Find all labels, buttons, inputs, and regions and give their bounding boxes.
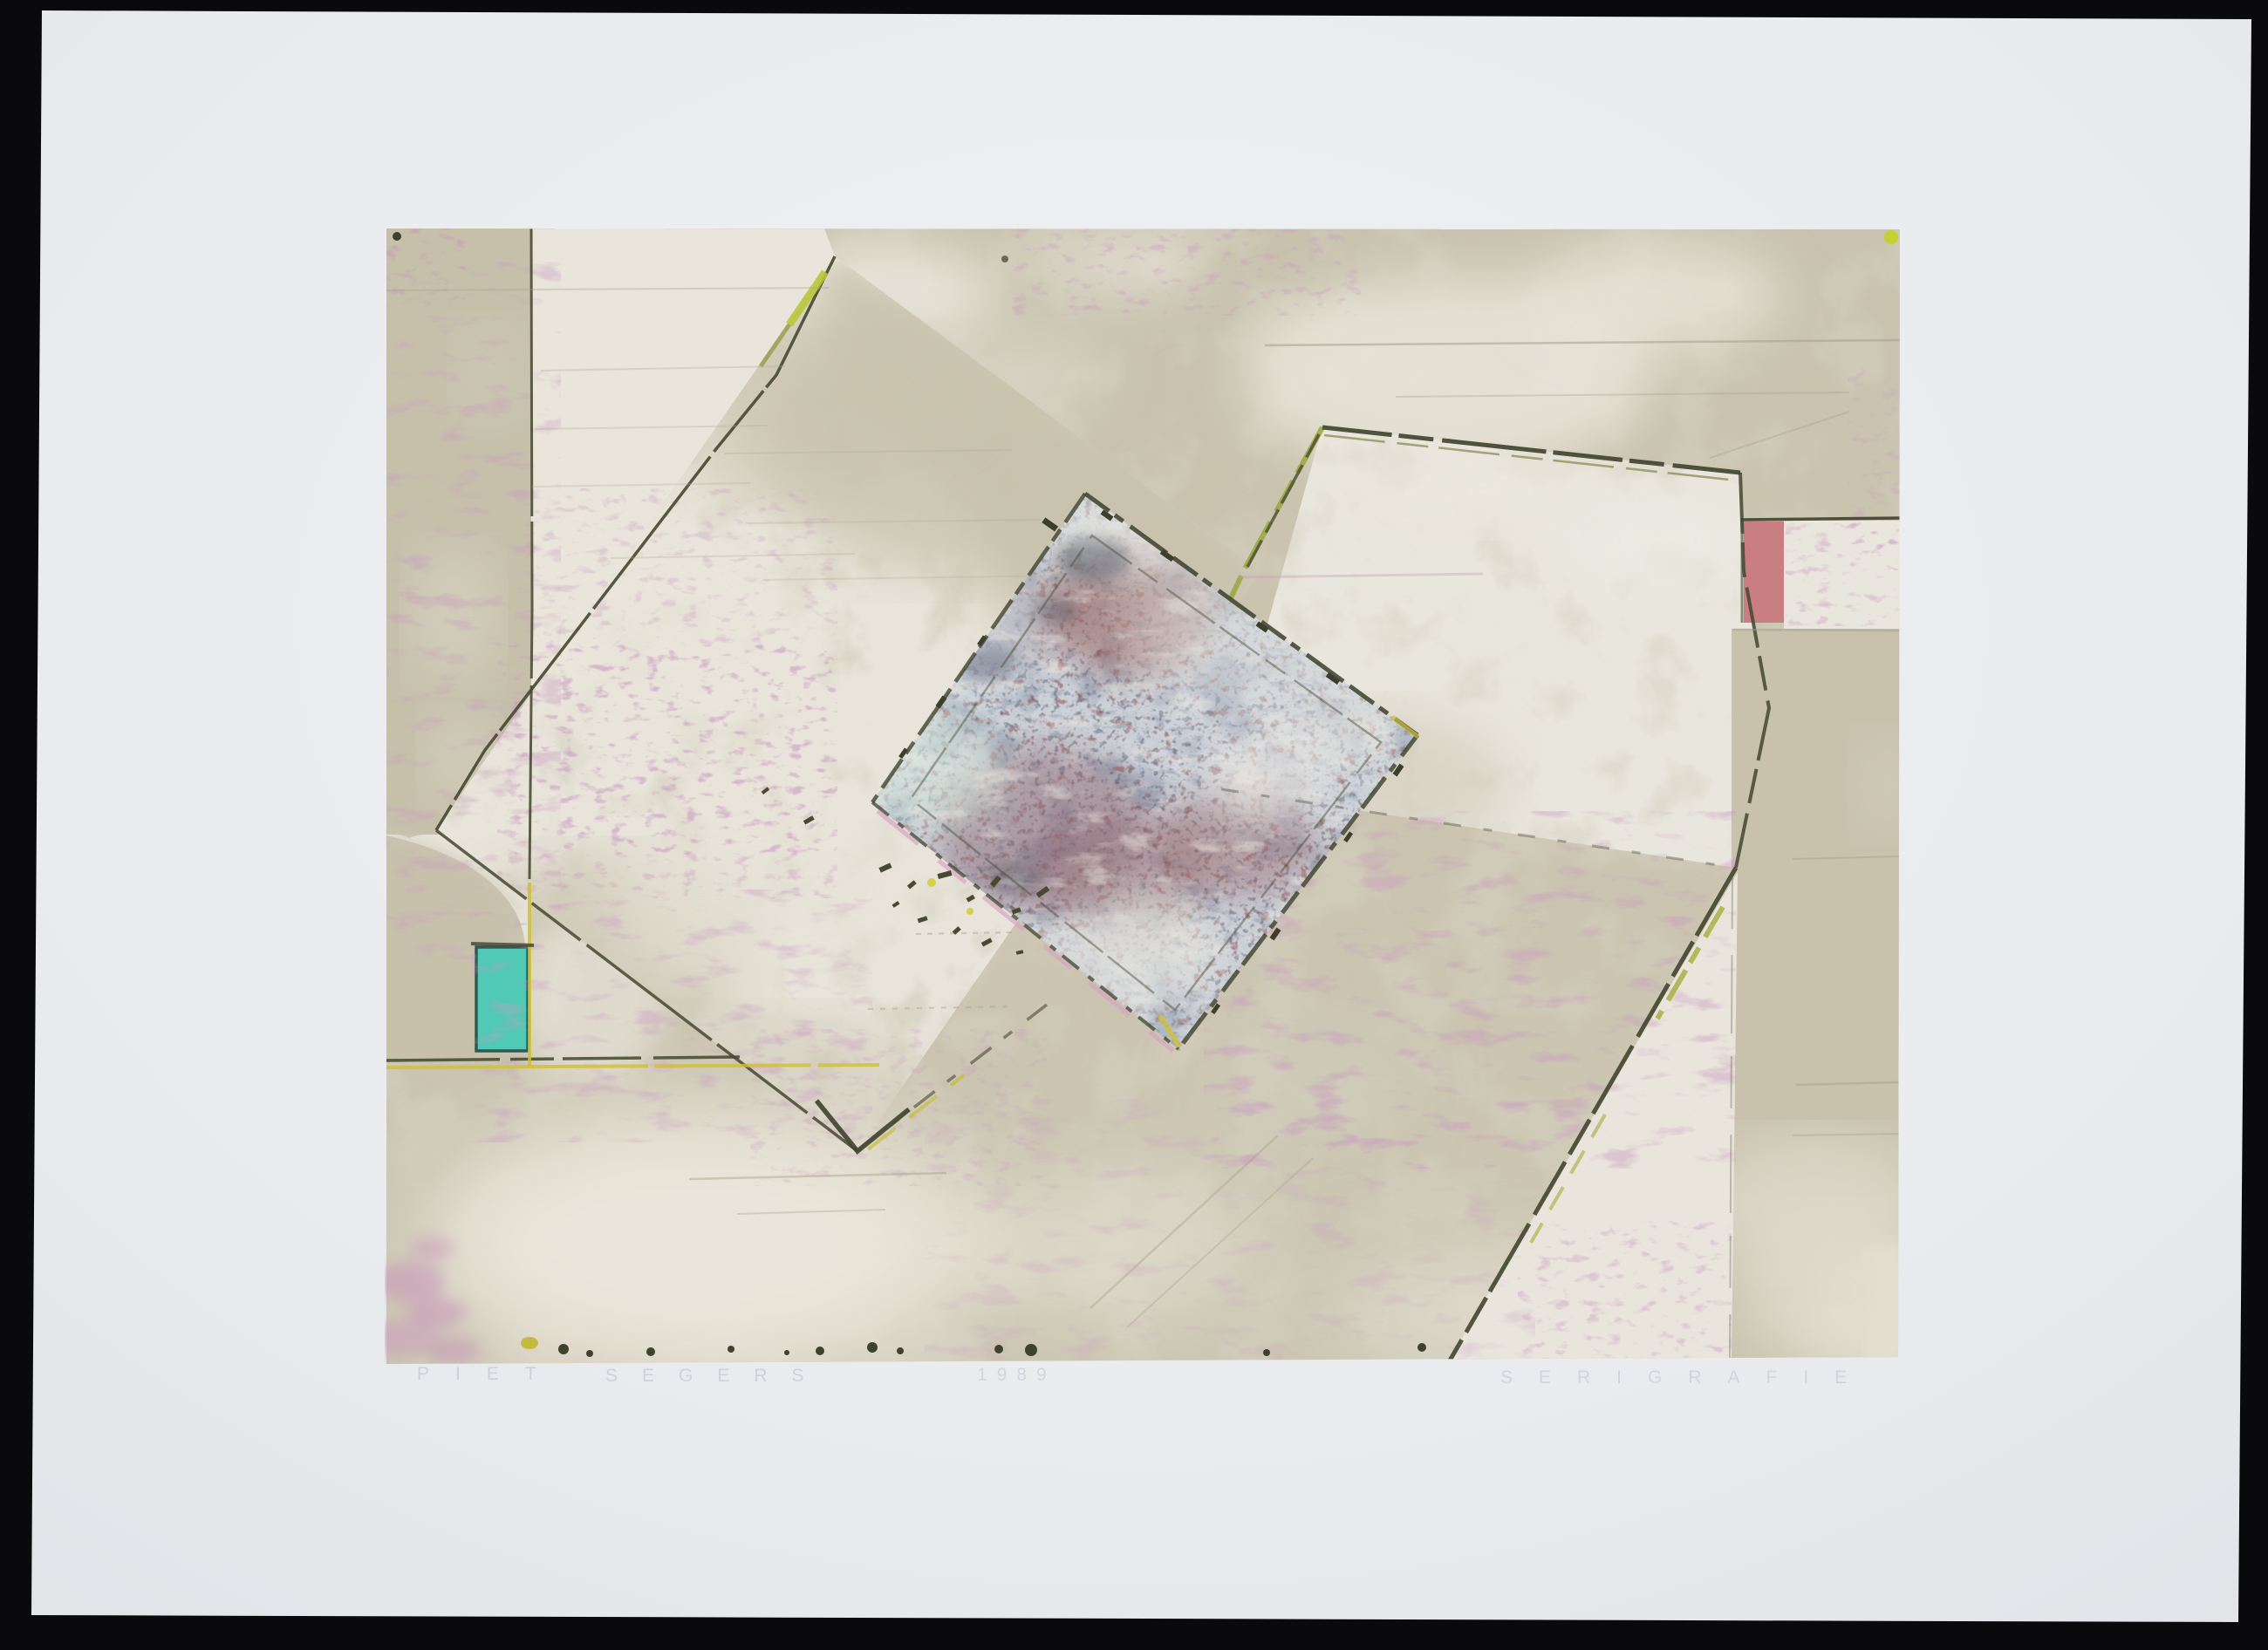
svg-text:SERIGRAFIE: SERIGRAFIE: [1500, 1367, 1873, 1387]
svg-text:PIET: PIET: [417, 1364, 563, 1384]
svg-text:SEGERS: SEGERS: [605, 1366, 829, 1386]
svg-text:1989: 1989: [977, 1365, 1056, 1385]
